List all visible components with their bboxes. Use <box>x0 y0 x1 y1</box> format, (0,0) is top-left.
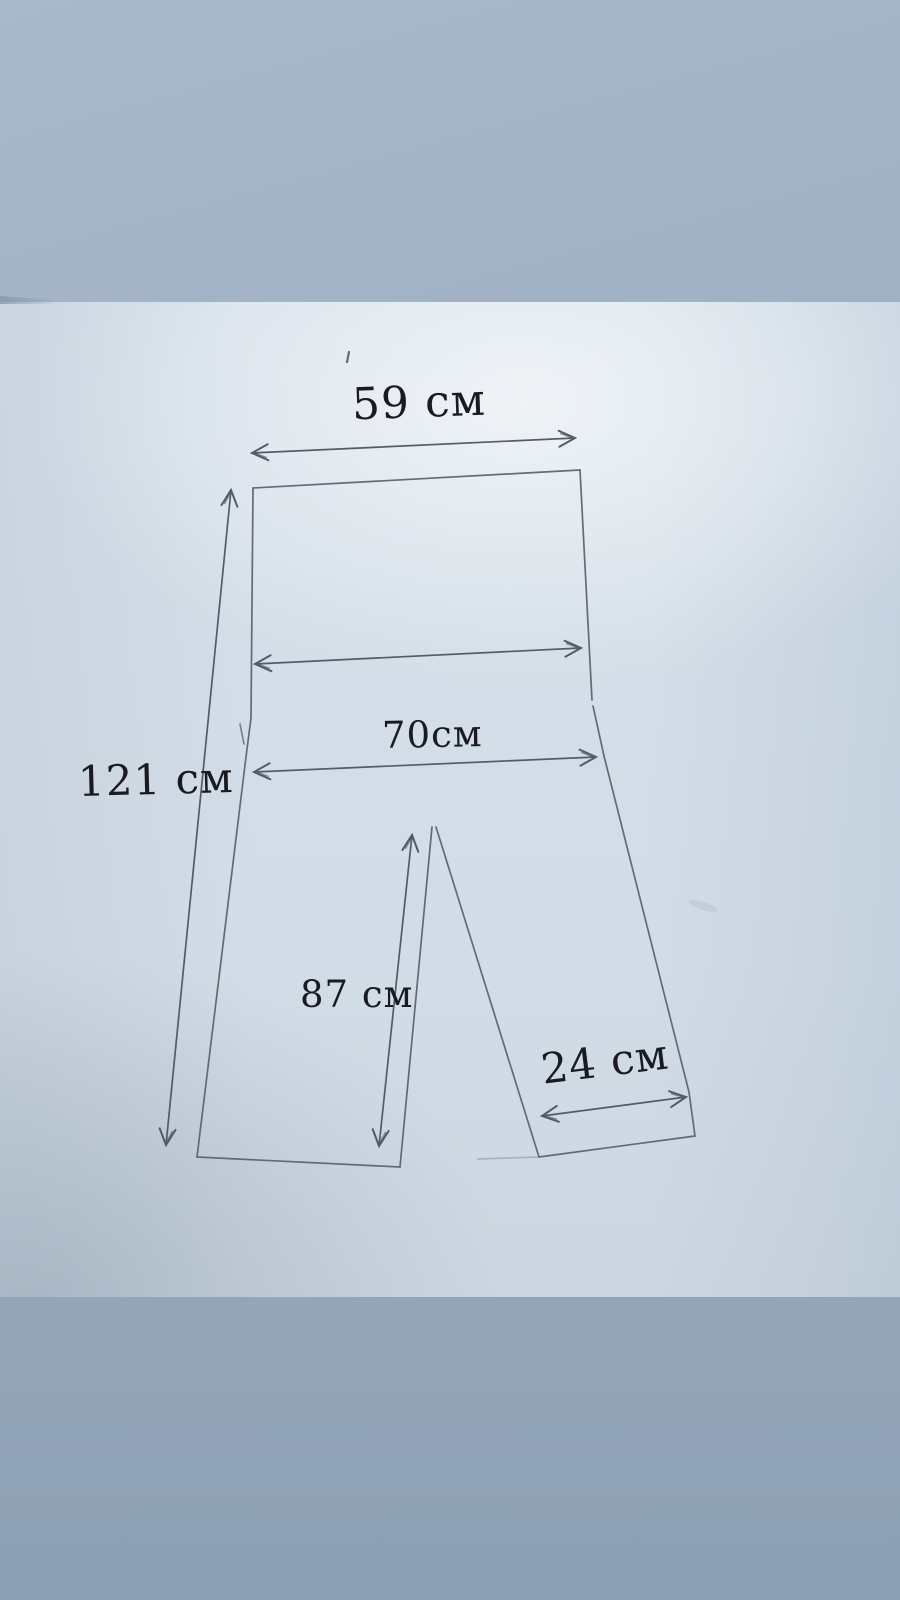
dimension-arrow-top-width <box>252 438 575 453</box>
dimension-arrow-waist-width <box>255 648 581 664</box>
paper-smudge <box>687 898 718 915</box>
outline-right-leg-hem <box>539 1136 695 1157</box>
outline-hem-faint-extension <box>478 1157 539 1159</box>
photo-scene: 59 см 121 см 70см 87 см 24 см <box>0 0 900 1600</box>
outline-left-edge-notch <box>240 724 244 744</box>
outline-left-leg-hem <box>197 1157 400 1167</box>
outline-top-edge <box>253 470 580 488</box>
dimension-label-top-width: 59 см <box>351 378 486 429</box>
dimension-label-inner-length: 87 см <box>300 976 413 1015</box>
outline-left-edge <box>197 488 253 1157</box>
outline-right-edge-upper <box>580 470 592 700</box>
dimension-arrow-hem-width <box>542 1097 686 1116</box>
stray-pen-mark <box>347 352 349 362</box>
dimension-label-total-length: 121 см <box>77 756 234 804</box>
dimension-label-hip-width: 70см <box>382 715 483 756</box>
dimension-arrow-hip-width <box>254 757 596 772</box>
dimension-arrow-total-length <box>166 490 231 1145</box>
outline-right-leg-inner <box>436 827 539 1157</box>
